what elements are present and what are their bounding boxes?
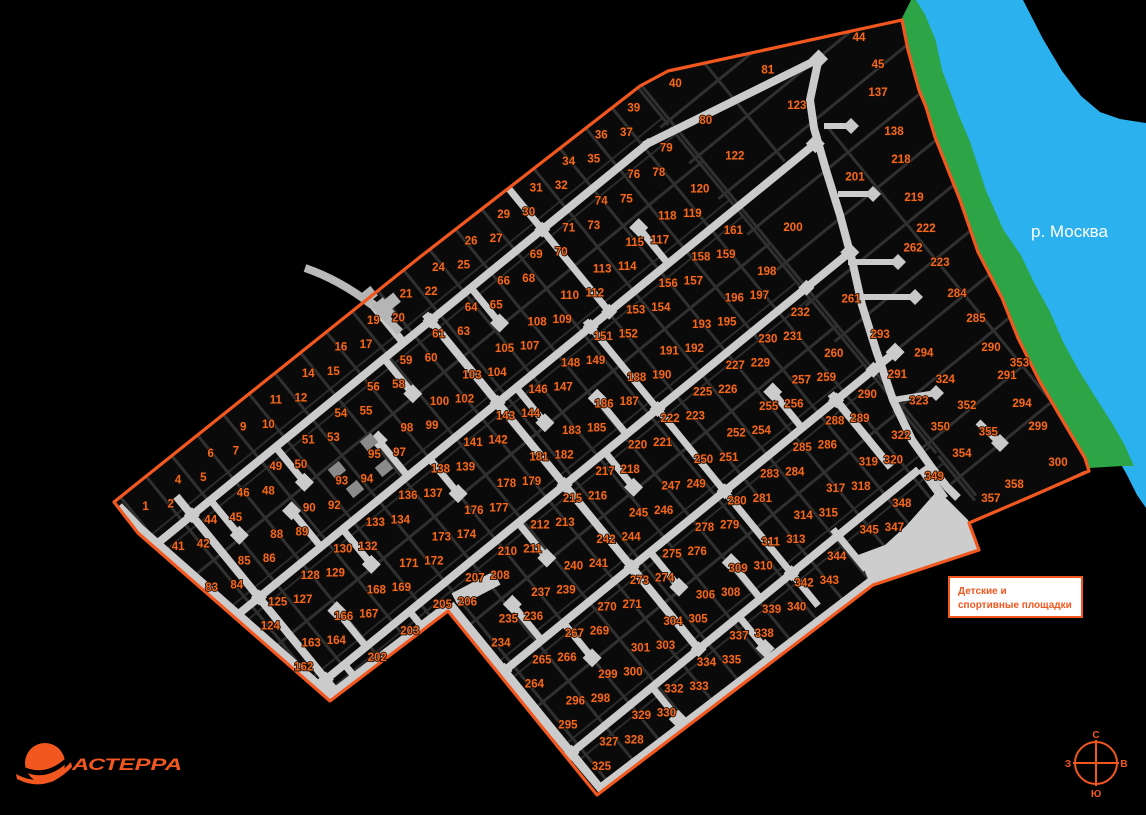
svg-text:100: 100 — [430, 396, 449, 408]
svg-text:138: 138 — [431, 464, 451, 476]
svg-text:227: 227 — [726, 360, 745, 372]
svg-text:200: 200 — [783, 222, 802, 234]
svg-text:6: 6 — [207, 448, 213, 460]
svg-text:280: 280 — [728, 495, 747, 507]
svg-text:234: 234 — [491, 638, 511, 650]
svg-text:7: 7 — [233, 445, 239, 457]
svg-text:132: 132 — [358, 541, 377, 553]
svg-text:269: 269 — [590, 626, 609, 638]
svg-text:324: 324 — [936, 374, 956, 386]
svg-text:286: 286 — [818, 440, 837, 452]
svg-text:222: 222 — [661, 413, 680, 425]
svg-text:55: 55 — [360, 406, 373, 418]
svg-text:12: 12 — [295, 392, 308, 404]
svg-text:25: 25 — [457, 260, 470, 272]
svg-text:215: 215 — [563, 493, 583, 505]
svg-text:303: 303 — [656, 640, 675, 652]
svg-text:112: 112 — [586, 288, 605, 300]
svg-text:236: 236 — [524, 611, 543, 623]
svg-text:89: 89 — [296, 526, 309, 538]
svg-text:115: 115 — [626, 237, 645, 249]
svg-text:309: 309 — [729, 563, 748, 575]
svg-text:221: 221 — [653, 437, 673, 449]
svg-text:49: 49 — [269, 461, 282, 473]
svg-text:84: 84 — [230, 580, 243, 592]
svg-text:251: 251 — [719, 452, 739, 464]
svg-text:319: 319 — [859, 457, 878, 469]
svg-text:294: 294 — [914, 348, 934, 360]
svg-text:4: 4 — [175, 474, 182, 486]
svg-text:108: 108 — [528, 316, 548, 328]
svg-text:314: 314 — [794, 510, 814, 522]
svg-text:235: 235 — [499, 614, 519, 626]
svg-text:59: 59 — [400, 355, 413, 367]
svg-text:222: 222 — [916, 223, 935, 235]
svg-text:217: 217 — [596, 466, 615, 478]
svg-text:300: 300 — [1048, 457, 1067, 469]
svg-text:205: 205 — [433, 599, 453, 611]
svg-text:10: 10 — [262, 419, 275, 431]
svg-text:293: 293 — [871, 329, 890, 341]
svg-text:254: 254 — [752, 425, 772, 437]
svg-text:315: 315 — [819, 507, 839, 519]
svg-text:15: 15 — [327, 366, 340, 378]
svg-text:299: 299 — [1028, 421, 1047, 433]
svg-text:281: 281 — [753, 493, 773, 505]
svg-text:339: 339 — [762, 604, 781, 616]
svg-text:164: 164 — [327, 635, 347, 647]
svg-text:237: 237 — [531, 587, 550, 599]
svg-text:5: 5 — [200, 472, 207, 484]
svg-text:357: 357 — [981, 493, 1000, 505]
svg-text:354: 354 — [952, 448, 972, 460]
svg-text:35: 35 — [587, 153, 600, 165]
svg-text:347: 347 — [885, 522, 904, 534]
svg-text:р. Москва: р. Москва — [1031, 222, 1108, 241]
svg-text:95: 95 — [368, 449, 381, 461]
svg-text:161: 161 — [724, 225, 744, 237]
svg-text:247: 247 — [662, 481, 681, 493]
svg-text:301: 301 — [631, 643, 651, 655]
svg-text:223: 223 — [930, 257, 949, 269]
svg-text:2: 2 — [167, 499, 173, 511]
svg-text:242: 242 — [596, 534, 615, 546]
svg-text:92: 92 — [328, 500, 341, 512]
svg-text:169: 169 — [392, 582, 411, 594]
svg-text:168: 168 — [367, 584, 387, 596]
svg-text:1: 1 — [142, 501, 149, 513]
svg-text:39: 39 — [627, 103, 640, 115]
svg-text:276: 276 — [688, 546, 707, 558]
svg-text:97: 97 — [393, 447, 406, 459]
svg-text:211: 211 — [523, 543, 542, 555]
svg-text:288: 288 — [825, 416, 845, 428]
svg-text:230: 230 — [758, 334, 777, 346]
svg-text:208: 208 — [490, 570, 510, 582]
svg-text:30: 30 — [522, 207, 535, 219]
svg-text:149: 149 — [586, 355, 605, 367]
svg-text:310: 310 — [754, 561, 773, 573]
svg-text:283: 283 — [760, 469, 779, 481]
svg-text:192: 192 — [685, 343, 704, 355]
svg-text:29: 29 — [497, 209, 510, 221]
svg-text:79: 79 — [660, 143, 673, 155]
svg-text:С: С — [1092, 730, 1099, 741]
svg-text:232: 232 — [791, 307, 810, 319]
svg-text:17: 17 — [360, 339, 373, 351]
svg-text:69: 69 — [530, 249, 543, 261]
svg-text:174: 174 — [457, 529, 477, 541]
svg-text:275: 275 — [662, 548, 682, 560]
svg-text:216: 216 — [588, 490, 607, 502]
svg-text:260: 260 — [824, 348, 843, 360]
svg-text:197: 197 — [750, 290, 769, 302]
svg-text:148: 148 — [561, 358, 581, 370]
svg-text:317: 317 — [826, 483, 845, 495]
svg-text:284: 284 — [785, 466, 805, 478]
svg-text:246: 246 — [654, 505, 673, 517]
svg-text:206: 206 — [458, 597, 477, 609]
svg-text:202: 202 — [368, 652, 387, 664]
svg-text:332: 332 — [664, 684, 683, 696]
svg-text:337: 337 — [729, 631, 748, 643]
svg-text:68: 68 — [522, 273, 535, 285]
svg-text:56: 56 — [367, 382, 380, 394]
svg-text:348: 348 — [892, 498, 912, 510]
svg-text:185: 185 — [587, 423, 607, 435]
svg-text:322: 322 — [891, 430, 910, 442]
svg-text:176: 176 — [464, 505, 483, 517]
svg-text:296: 296 — [566, 696, 585, 708]
svg-text:343: 343 — [820, 575, 839, 587]
svg-text:88: 88 — [270, 529, 283, 541]
svg-text:167: 167 — [359, 609, 378, 621]
svg-text:270: 270 — [597, 601, 616, 613]
svg-text:110: 110 — [560, 290, 579, 302]
svg-text:218: 218 — [891, 154, 911, 166]
svg-text:40: 40 — [669, 78, 682, 90]
svg-text:51: 51 — [302, 435, 315, 447]
svg-text:285: 285 — [793, 442, 813, 454]
svg-text:44: 44 — [853, 32, 866, 44]
svg-text:76: 76 — [627, 169, 640, 181]
svg-text:291: 291 — [888, 369, 908, 381]
svg-text:129: 129 — [326, 568, 345, 580]
svg-text:178: 178 — [497, 478, 517, 490]
svg-text:279: 279 — [720, 519, 739, 531]
svg-text:34: 34 — [562, 156, 575, 168]
svg-text:261: 261 — [842, 293, 862, 305]
svg-text:173: 173 — [432, 531, 451, 543]
svg-text:98: 98 — [401, 423, 414, 435]
svg-text:103: 103 — [462, 370, 481, 382]
svg-text:64: 64 — [465, 302, 478, 314]
svg-text:323: 323 — [909, 395, 928, 407]
svg-text:З: З — [1065, 759, 1071, 770]
svg-text:20: 20 — [392, 313, 405, 325]
svg-text:295: 295 — [558, 720, 578, 732]
svg-text:220: 220 — [628, 440, 647, 452]
svg-text:262: 262 — [904, 243, 923, 255]
svg-text:24: 24 — [432, 262, 445, 274]
svg-text:313: 313 — [786, 534, 805, 546]
svg-text:119: 119 — [683, 208, 702, 220]
svg-text:298: 298 — [591, 693, 611, 705]
svg-text:223: 223 — [686, 411, 705, 423]
svg-text:329: 329 — [632, 710, 651, 722]
svg-text:136: 136 — [398, 490, 417, 502]
svg-text:157: 157 — [684, 276, 703, 288]
svg-text:241: 241 — [589, 558, 609, 570]
svg-text:9: 9 — [240, 421, 246, 433]
svg-text:172: 172 — [424, 555, 443, 567]
svg-text:Ю: Ю — [1091, 789, 1101, 800]
svg-text:334: 334 — [697, 657, 717, 669]
svg-text:141: 141 — [463, 437, 483, 449]
svg-text:133: 133 — [366, 517, 385, 529]
svg-text:151: 151 — [594, 331, 614, 343]
svg-text:212: 212 — [530, 519, 549, 531]
svg-text:240: 240 — [564, 560, 583, 572]
svg-text:127: 127 — [293, 594, 312, 606]
svg-text:350: 350 — [931, 422, 950, 434]
svg-text:31: 31 — [530, 182, 543, 194]
svg-text:46: 46 — [237, 488, 250, 500]
svg-text:11: 11 — [270, 395, 283, 407]
svg-text:27: 27 — [490, 233, 503, 245]
svg-text:спортивные площадки: спортивные площадки — [958, 600, 1072, 611]
svg-text:353: 353 — [1010, 357, 1029, 369]
svg-text:304: 304 — [663, 616, 683, 628]
svg-text:156: 156 — [659, 278, 678, 290]
svg-text:44: 44 — [204, 514, 217, 526]
svg-text:320: 320 — [884, 454, 903, 466]
svg-text:311: 311 — [761, 536, 780, 548]
svg-text:26: 26 — [465, 236, 478, 248]
svg-text:125: 125 — [268, 596, 288, 608]
svg-text:250: 250 — [694, 454, 713, 466]
svg-text:318: 318 — [851, 481, 871, 493]
svg-text:327: 327 — [599, 737, 618, 749]
svg-text:249: 249 — [687, 478, 706, 490]
svg-text:183: 183 — [562, 425, 581, 437]
svg-text:256: 256 — [784, 399, 803, 411]
svg-text:305: 305 — [689, 614, 709, 626]
svg-text:83: 83 — [205, 582, 218, 594]
svg-text:190: 190 — [652, 370, 671, 382]
svg-text:139: 139 — [456, 461, 475, 473]
svg-text:85: 85 — [238, 555, 251, 567]
svg-text:60: 60 — [425, 353, 438, 365]
svg-text:86: 86 — [263, 553, 276, 565]
svg-text:255: 255 — [759, 401, 779, 413]
svg-text:244: 244 — [622, 531, 642, 543]
svg-text:130: 130 — [333, 543, 352, 555]
svg-text:163: 163 — [302, 638, 321, 650]
svg-text:71: 71 — [562, 222, 575, 234]
svg-text:218: 218 — [621, 464, 641, 476]
svg-text:338: 338 — [755, 628, 775, 640]
svg-text:328: 328 — [624, 734, 644, 746]
svg-text:266: 266 — [557, 652, 576, 664]
svg-text:80: 80 — [699, 115, 712, 127]
svg-text:124: 124 — [261, 621, 281, 633]
svg-text:225: 225 — [693, 387, 713, 399]
svg-text:81: 81 — [761, 65, 774, 77]
svg-text:300: 300 — [623, 667, 642, 679]
svg-text:99: 99 — [426, 420, 439, 432]
svg-text:259: 259 — [817, 372, 836, 384]
svg-text:21: 21 — [400, 289, 413, 301]
svg-text:299: 299 — [598, 669, 617, 681]
svg-text:105: 105 — [495, 343, 515, 355]
svg-text:146: 146 — [529, 384, 548, 396]
svg-text:291: 291 — [997, 370, 1017, 382]
svg-text:203: 203 — [400, 626, 419, 638]
svg-text:90: 90 — [303, 502, 316, 514]
svg-text:В: В — [1120, 759, 1127, 770]
svg-text:63: 63 — [457, 326, 470, 338]
svg-text:196: 196 — [725, 292, 744, 304]
svg-text:330: 330 — [657, 708, 676, 720]
svg-text:147: 147 — [554, 382, 573, 394]
svg-text:213: 213 — [556, 517, 575, 529]
svg-text:58: 58 — [392, 379, 405, 391]
svg-text:265: 265 — [532, 655, 552, 667]
svg-text:137: 137 — [423, 488, 442, 500]
svg-text:93: 93 — [335, 476, 348, 488]
svg-text:352: 352 — [957, 400, 976, 412]
svg-text:16: 16 — [335, 342, 348, 354]
svg-text:210: 210 — [498, 546, 517, 558]
svg-text:274: 274 — [655, 573, 675, 585]
svg-text:290: 290 — [981, 342, 1000, 354]
svg-text:355: 355 — [979, 427, 999, 439]
svg-text:325: 325 — [592, 761, 612, 773]
svg-text:245: 245 — [629, 507, 649, 519]
svg-text:182: 182 — [555, 449, 574, 461]
svg-text:53: 53 — [327, 432, 340, 444]
svg-text:143: 143 — [496, 411, 515, 423]
svg-text:37: 37 — [620, 127, 633, 139]
svg-text:144: 144 — [521, 408, 541, 420]
svg-text:226: 226 — [718, 384, 737, 396]
svg-text:152: 152 — [619, 329, 638, 341]
svg-text:114: 114 — [618, 261, 637, 273]
svg-text:Детские и: Детские и — [958, 586, 1007, 597]
svg-text:239: 239 — [556, 585, 575, 597]
svg-text:344: 344 — [827, 551, 847, 563]
svg-text:340: 340 — [787, 602, 806, 614]
svg-text:198: 198 — [757, 266, 777, 278]
svg-text:278: 278 — [695, 522, 715, 534]
svg-text:107: 107 — [520, 341, 539, 353]
svg-text:73: 73 — [587, 220, 600, 232]
svg-text:207: 207 — [465, 572, 484, 584]
svg-text:128: 128 — [301, 570, 321, 582]
svg-text:102: 102 — [455, 394, 474, 406]
svg-text:142: 142 — [489, 435, 508, 447]
svg-text:264: 264 — [525, 679, 545, 691]
svg-text:117: 117 — [651, 234, 670, 246]
svg-text:122: 122 — [725, 151, 744, 163]
svg-text:271: 271 — [623, 599, 643, 611]
svg-text:70: 70 — [555, 246, 568, 258]
svg-text:188: 188 — [627, 372, 647, 384]
svg-text:94: 94 — [361, 473, 374, 485]
svg-text:308: 308 — [721, 587, 741, 599]
svg-text:187: 187 — [620, 396, 639, 408]
svg-text:252: 252 — [727, 428, 746, 440]
svg-text:179: 179 — [522, 476, 541, 488]
svg-text:75: 75 — [620, 193, 633, 205]
svg-text:120: 120 — [690, 184, 709, 196]
svg-text:345: 345 — [860, 524, 880, 536]
svg-text:159: 159 — [716, 249, 735, 261]
svg-text:162: 162 — [294, 662, 313, 674]
svg-text:153: 153 — [626, 304, 645, 316]
svg-text:19: 19 — [367, 315, 380, 327]
svg-text:289: 289 — [850, 413, 869, 425]
svg-text:61: 61 — [432, 329, 445, 341]
svg-text:154: 154 — [651, 302, 671, 314]
svg-text:191: 191 — [660, 346, 680, 358]
svg-text:306: 306 — [696, 589, 715, 601]
svg-text:АСТЕРРА: АСТЕРРА — [71, 755, 182, 774]
svg-text:36: 36 — [595, 129, 608, 141]
svg-text:181: 181 — [529, 452, 549, 464]
svg-text:78: 78 — [653, 167, 666, 179]
svg-text:32: 32 — [555, 180, 568, 192]
svg-text:118: 118 — [658, 210, 677, 222]
svg-text:195: 195 — [717, 317, 737, 329]
svg-text:113: 113 — [593, 263, 612, 275]
svg-text:342: 342 — [795, 577, 814, 589]
svg-text:257: 257 — [792, 375, 811, 387]
svg-text:45: 45 — [872, 59, 885, 71]
svg-text:66: 66 — [497, 275, 510, 287]
svg-text:229: 229 — [751, 358, 770, 370]
svg-text:171: 171 — [399, 558, 419, 570]
svg-text:290: 290 — [858, 389, 877, 401]
svg-text:41: 41 — [172, 541, 185, 553]
svg-text:48: 48 — [262, 485, 275, 497]
svg-text:123: 123 — [787, 100, 806, 112]
svg-text:201: 201 — [845, 171, 865, 183]
svg-text:349: 349 — [925, 471, 944, 483]
svg-text:267: 267 — [565, 628, 584, 640]
svg-text:158: 158 — [691, 251, 711, 263]
svg-text:333: 333 — [690, 681, 709, 693]
svg-text:74: 74 — [595, 196, 608, 208]
svg-text:137: 137 — [868, 87, 887, 99]
svg-text:50: 50 — [295, 459, 308, 471]
svg-text:273: 273 — [630, 575, 649, 587]
svg-text:294: 294 — [1012, 398, 1032, 410]
svg-text:109: 109 — [553, 314, 572, 326]
svg-text:358: 358 — [1005, 479, 1025, 491]
svg-text:138: 138 — [884, 126, 904, 138]
svg-text:45: 45 — [229, 512, 242, 524]
svg-text:166: 166 — [334, 611, 353, 623]
svg-text:285: 285 — [966, 313, 986, 325]
svg-text:186: 186 — [595, 399, 614, 411]
svg-text:42: 42 — [197, 538, 210, 550]
svg-text:104: 104 — [488, 367, 508, 379]
svg-text:177: 177 — [489, 502, 508, 514]
svg-text:134: 134 — [391, 514, 411, 526]
svg-text:65: 65 — [490, 300, 503, 312]
